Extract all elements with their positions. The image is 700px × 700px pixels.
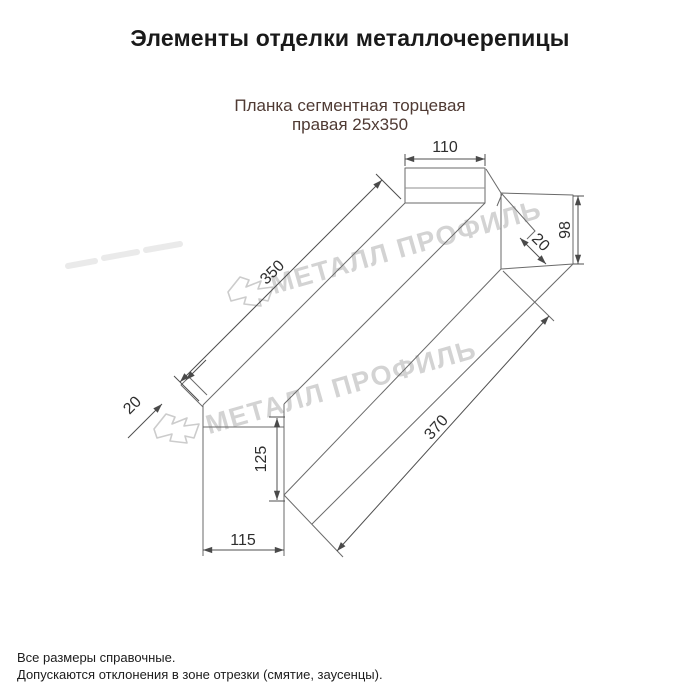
dim-end-height-label: 98 — [557, 221, 574, 239]
dimension-labels: 110 98 20 350 20 125 115 370 — [120, 139, 574, 549]
dim-bottom-length-label: 370 — [421, 412, 452, 443]
watermark-text-upper: МЕТАЛЛ ПРОФИЛЬ — [267, 194, 545, 300]
technical-drawing: МЕТАЛЛ ПРОФИЛЬ МЕТАЛЛ ПРОФИЛЬ — [0, 0, 700, 700]
watermark-fragment — [68, 244, 180, 266]
dim-left-height-label: 125 — [253, 446, 270, 473]
metall-profil-logo-icon-lower — [154, 414, 199, 443]
dim-left-fold-label: 20 — [120, 393, 145, 418]
footer-line1: Все размеры справочные. — [17, 649, 383, 666]
dim-flange-width-label: 110 — [432, 139, 458, 156]
footer-note: Все размеры справочные. Допускаются откл… — [17, 649, 383, 683]
page: Элементы отделки металлочерепицы Планка … — [0, 0, 700, 700]
footer-line2: Допускаются отклонения в зоне отрезки (с… — [17, 666, 383, 683]
dim-bottom-width-label: 115 — [230, 532, 256, 549]
